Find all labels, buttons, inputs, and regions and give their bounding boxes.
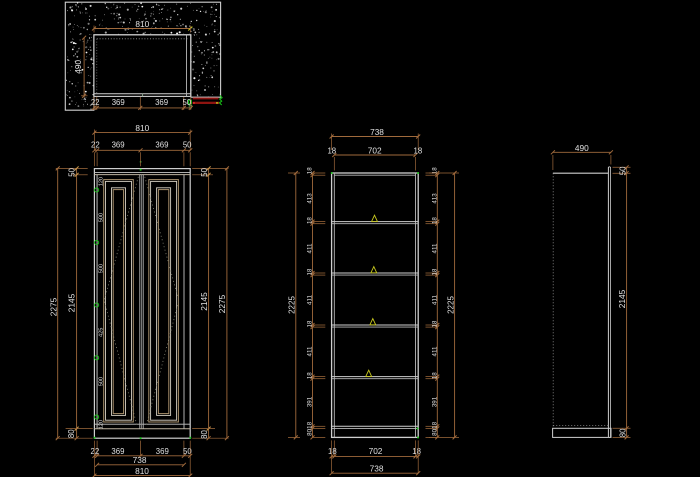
svg-text:80: 80 [307,428,314,435]
svg-text:18: 18 [307,217,314,224]
svg-text:18: 18 [327,146,336,155]
svg-text:18: 18 [307,421,314,428]
svg-text:810: 810 [135,123,149,133]
svg-text:18: 18 [414,146,423,155]
svg-text:18: 18 [431,217,438,224]
svg-text:50: 50 [618,166,627,175]
svg-text:80: 80 [618,428,627,437]
svg-text:411: 411 [431,346,438,356]
svg-text:411: 411 [307,295,314,305]
svg-text:22: 22 [91,98,100,107]
svg-text:18: 18 [307,167,314,174]
svg-text:738: 738 [370,127,384,137]
svg-text:2275: 2275 [217,294,227,313]
svg-text:18: 18 [307,268,314,275]
svg-text:413: 413 [431,193,438,204]
svg-text:702: 702 [369,446,383,456]
svg-text:80: 80 [431,428,438,435]
svg-text:702: 702 [368,145,382,155]
svg-text:18: 18 [412,447,421,456]
svg-text:411: 411 [307,243,314,253]
svg-text:2145: 2145 [617,289,627,308]
svg-text:411: 411 [431,295,438,305]
svg-text:2145: 2145 [199,292,209,311]
svg-text:18: 18 [431,421,438,428]
svg-text:490: 490 [575,143,589,153]
svg-text:50: 50 [200,167,209,176]
svg-text:2225: 2225 [287,296,296,314]
svg-text:369: 369 [112,141,125,150]
svg-text:810: 810 [135,466,149,476]
svg-text:369: 369 [156,447,169,456]
svg-text:413: 413 [307,193,314,204]
svg-text:18: 18 [431,268,438,275]
svg-text:22: 22 [91,141,100,150]
svg-text:369: 369 [112,98,125,107]
svg-text:18: 18 [328,447,337,456]
svg-text:500: 500 [99,264,105,273]
svg-text:2225: 2225 [446,296,455,314]
svg-text:391: 391 [431,396,438,407]
svg-text:18: 18 [431,320,438,327]
svg-text:120: 120 [99,177,105,186]
svg-text:411: 411 [431,243,438,253]
svg-text:2145: 2145 [67,293,77,312]
svg-text:369: 369 [111,447,124,456]
svg-text:50: 50 [183,447,192,456]
svg-text:369: 369 [155,98,168,107]
svg-text:738: 738 [370,464,384,474]
svg-text:50: 50 [182,98,191,107]
svg-text:490: 490 [73,59,83,73]
svg-text:22: 22 [91,447,100,456]
svg-text:18: 18 [307,372,314,379]
svg-text:411: 411 [307,346,314,356]
svg-text:500: 500 [99,213,105,222]
svg-text:500: 500 [99,377,105,386]
svg-text:391: 391 [307,396,314,407]
svg-text:425: 425 [99,328,105,337]
svg-text:50: 50 [67,167,76,176]
svg-text:120: 120 [99,420,105,429]
svg-text:369: 369 [155,141,168,150]
svg-text:18: 18 [431,372,438,379]
svg-text:18: 18 [307,320,314,327]
svg-text:810: 810 [135,19,149,29]
svg-text:2275: 2275 [48,297,58,316]
svg-text:738: 738 [133,455,147,465]
svg-text:50: 50 [183,141,192,150]
svg-text:80: 80 [67,429,76,438]
svg-text:80: 80 [200,430,209,439]
